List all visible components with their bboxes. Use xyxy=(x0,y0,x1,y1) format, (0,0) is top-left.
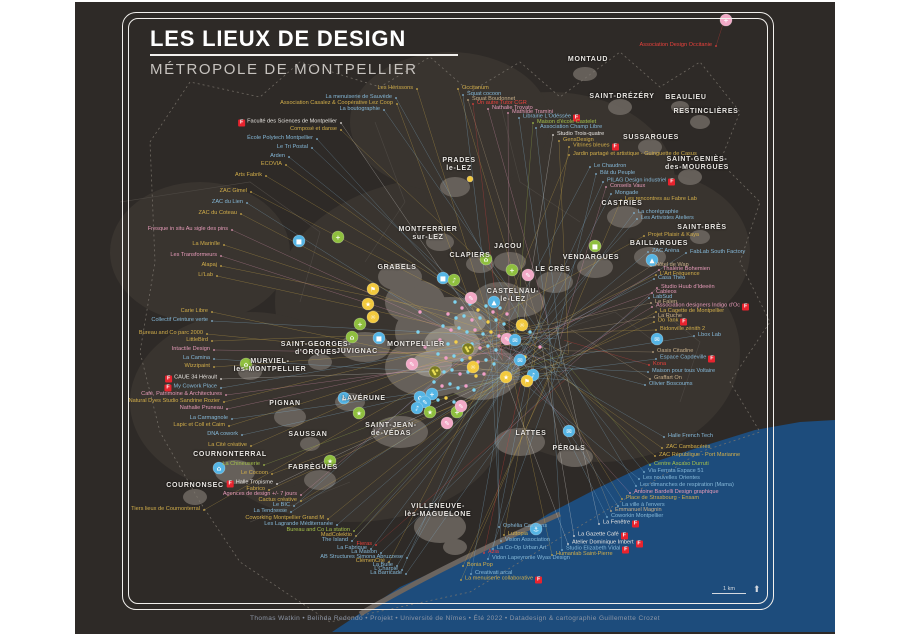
badge-icon: ⚑ xyxy=(524,377,530,385)
label-anchor-dot xyxy=(518,117,520,119)
poi-label: ZAC du Lien xyxy=(212,200,243,206)
poi-label-text: La Tendresse xyxy=(254,508,287,514)
poi-dot xyxy=(502,322,505,325)
label-anchor-dot xyxy=(416,88,418,90)
label-anchor-dot xyxy=(503,534,505,536)
label-anchor-dot xyxy=(462,94,464,96)
badge-icon: ⚑ xyxy=(370,285,376,293)
poi-badge: ♪ xyxy=(448,274,460,286)
poi-label-text: Vitrines bleues xyxy=(573,143,610,149)
label-anchor-dot xyxy=(213,366,215,368)
label-anchor-dot xyxy=(383,109,385,111)
poi-label: La Barricade xyxy=(370,571,402,577)
poi-badge: + xyxy=(354,318,366,330)
city-label: SAINT-JEAN- de-VÉDAS xyxy=(365,422,417,438)
poi-dot xyxy=(418,310,421,313)
badge-icon: ✉ xyxy=(654,335,659,343)
badge-icon: ⌂ xyxy=(217,464,222,472)
label-anchor-dot xyxy=(220,378,222,380)
label-anchor-dot xyxy=(240,213,242,215)
poi-dot xyxy=(489,330,492,333)
badge-icon: ✎ xyxy=(422,398,427,406)
poi-label-text: Le Cocoon xyxy=(241,470,268,476)
poi-label: Maison pour tous Voltaire xyxy=(652,369,715,375)
label-anchor-dot xyxy=(655,311,657,313)
city-label: PRADES le-LEZ xyxy=(442,157,475,173)
title-rule xyxy=(150,54,458,56)
label-anchor-dot xyxy=(351,540,353,542)
poi-label: ZAC Gimel xyxy=(220,189,247,195)
poi-label-text: Natural Dyes Studio Sandrine Rozier xyxy=(129,398,220,404)
f-mark-icon: F xyxy=(742,304,749,311)
poi-label-text: Tiers lieux de Cournonterral xyxy=(131,506,200,512)
poi-dot xyxy=(441,324,444,327)
label-anchor-dot xyxy=(263,464,265,466)
city-label: VENDARGUES xyxy=(563,254,619,262)
label-anchor-dot xyxy=(231,229,233,231)
label-anchor-dot xyxy=(265,175,267,177)
poi-label-text: Les rencontres au Fabre Lab xyxy=(625,196,697,202)
poi-dot xyxy=(452,400,455,403)
poi-dot xyxy=(492,362,495,365)
label-anchor-dot xyxy=(293,505,295,507)
poi-label: Association Design Occitanie xyxy=(640,43,712,49)
city-label: SAINT-BRÈS xyxy=(677,224,726,232)
poi-label-text: Café, Patrimoine & Architectures xyxy=(141,391,222,397)
poi-label: Les dimanches de respiration (Mama) xyxy=(640,483,734,489)
poi-label: Creativati arcal xyxy=(475,571,512,577)
badge-icon: ■ xyxy=(296,237,302,245)
poi-label: Les nouvelles Orientes xyxy=(643,476,700,482)
label-anchor-dot xyxy=(246,202,248,204)
label-anchor-dot xyxy=(647,371,649,373)
poi-label-text: ZAC Cambacérès xyxy=(666,444,710,450)
poi-dot xyxy=(482,372,485,375)
scale-bar-line xyxy=(712,593,746,594)
badge-icon: ★ xyxy=(356,409,362,417)
poi-badge: ■ xyxy=(373,332,385,344)
label-anchor-dot xyxy=(598,523,600,525)
poi-badge: ■ xyxy=(589,240,601,252)
label-anchor-dot xyxy=(647,251,649,253)
poi-label: ZAC du Coteau xyxy=(198,211,237,217)
poi-label-text: The Island xyxy=(322,537,348,543)
poi-dot xyxy=(538,345,541,348)
poi-label: Place de Strasbourg - Ensam xyxy=(626,496,699,502)
poi-dot xyxy=(460,358,463,361)
label-anchor-dot xyxy=(327,518,329,520)
poi-dot xyxy=(458,372,461,375)
poi-label: Humanlab Saint-Pierre xyxy=(556,552,613,558)
poi-label: La Chineuserie xyxy=(222,462,260,468)
label-anchor-dot xyxy=(653,321,655,323)
poi-dot xyxy=(450,368,453,371)
poi-label: Les Artivistes Ateliers xyxy=(641,216,694,222)
poi-dot xyxy=(442,370,445,373)
badge-icon: ★ xyxy=(503,373,509,381)
poi-badge: ♪ xyxy=(411,402,423,414)
label-anchor-dot xyxy=(487,558,489,560)
poi-label: ECOVIA xyxy=(261,162,282,168)
poi-badge xyxy=(429,366,441,378)
city-label: MONTPELLIER xyxy=(387,341,445,349)
poi-label-text: Association Design Occitanie xyxy=(640,42,712,48)
poi-label-text: ZAC du Lien xyxy=(212,199,243,205)
poi-label-text: Olivier Boscoums xyxy=(649,381,693,387)
label-anchor-dot xyxy=(223,244,225,246)
label-anchor-dot xyxy=(610,510,612,512)
label-anchor-dot xyxy=(648,297,650,299)
poi-label-text: FabLab South Factory xyxy=(690,249,745,255)
badge-icon: ✉ xyxy=(512,336,517,344)
poi-label-text: Li'Lab xyxy=(198,272,213,278)
label-anchor-dot xyxy=(231,418,233,420)
badge-icon: ■ xyxy=(440,274,446,282)
poi-label-text: Halle French Tech xyxy=(668,433,713,439)
poi-label: La Co-Op Urban Art xyxy=(497,546,546,552)
badge-icon: + xyxy=(429,390,434,398)
badge-icon: ♪ xyxy=(452,276,456,284)
label-anchor-dot xyxy=(568,146,570,148)
label-anchor-dot xyxy=(396,103,398,105)
label-anchor-dot xyxy=(462,565,464,567)
label-anchor-dot xyxy=(211,340,213,342)
poi-label-text: Le Tri Postal xyxy=(277,144,308,150)
poi-dot xyxy=(444,356,447,359)
poi-label: La Gazette CaféF xyxy=(578,533,630,540)
poi-label-text: Creativati arcal xyxy=(475,570,512,576)
poi-dot xyxy=(416,330,419,333)
poi-label: Alapaj xyxy=(201,263,217,269)
poi-badge: ✎ xyxy=(465,292,477,304)
poi-dot xyxy=(432,380,435,383)
connector-line xyxy=(716,24,723,46)
label-anchor-dot xyxy=(663,436,665,438)
poi-label-text: ZAC Gimel xyxy=(220,188,247,194)
label-anchor-dot xyxy=(290,511,292,513)
f-mark-icon: F xyxy=(668,179,675,186)
poi-label-text: Espace Capdeville xyxy=(660,355,706,361)
poi-label-text: Les dimanches de respiration (Mama) xyxy=(640,482,734,488)
poi-dot xyxy=(460,306,463,309)
label-anchor-dot xyxy=(460,579,462,581)
poi-badge: ★ xyxy=(353,407,365,419)
label-anchor-dot xyxy=(568,154,570,156)
poi-label: Le Cocoon xyxy=(241,471,268,477)
city-label: BAILLARGUES xyxy=(630,240,688,248)
poi-label: Les Hérissons xyxy=(378,86,413,92)
poi-label-text: Fresque in situ Au sigle des pins xyxy=(148,226,228,232)
label-anchor-dot xyxy=(610,193,612,195)
label-anchor-dot xyxy=(216,275,218,277)
f-mark-icon: F xyxy=(708,356,715,363)
poi-dot xyxy=(491,310,494,313)
badge-icon: + xyxy=(509,266,514,274)
label-anchor-dot xyxy=(573,535,575,537)
label-anchor-dot xyxy=(693,335,695,337)
label-anchor-dot xyxy=(621,498,623,500)
poi-label: Le Chaudron xyxy=(594,164,626,170)
poi-label-text: Casa Théo xyxy=(658,275,685,281)
poi-label: Arts Fabrik xyxy=(235,173,262,179)
label-anchor-dot xyxy=(650,302,652,304)
poi-label-text: Bonia Pop xyxy=(467,562,493,568)
poi-label: Halle French Tech xyxy=(668,434,713,440)
label-anchor-dot xyxy=(605,186,607,188)
label-anchor-dot xyxy=(472,103,474,105)
label-anchor-dot xyxy=(589,166,591,168)
poi-label: Fresque in situ Au sigle des pins xyxy=(148,227,228,233)
poi-dot xyxy=(453,300,456,303)
city-label: BEAULIEU xyxy=(665,94,706,102)
poi-label-text: La Carmagnole xyxy=(190,415,228,421)
city-label: SUSSARGUES xyxy=(623,134,679,142)
poi-badge: + xyxy=(720,14,732,26)
poi-dot xyxy=(446,342,449,345)
poi-dot xyxy=(494,318,497,321)
poi-label-text: Do Tank xyxy=(658,318,678,324)
poi-label: Do TankF xyxy=(658,319,689,326)
poi-label: FabLab South Factory xyxy=(690,250,745,256)
label-anchor-dot xyxy=(353,530,355,532)
poi-label: Jardin partagé et artistique - Guinguett… xyxy=(573,152,697,158)
poi-label: Centre Ascaso Durruti xyxy=(654,462,709,468)
poi-label: Les rencontres au Fabre Lab xyxy=(625,197,697,203)
poi-label-text: La Fenêtre xyxy=(603,520,630,526)
city-label: JACOU xyxy=(494,243,522,251)
label-anchor-dot xyxy=(223,401,225,403)
poi-dot xyxy=(472,388,475,391)
poi-label: Conseils Vaux xyxy=(610,184,645,190)
label-anchor-dot xyxy=(648,364,650,366)
poi-label-text: Faculté des Sciences de Montpellier xyxy=(247,119,337,125)
city-label: MONTAUD xyxy=(568,56,608,64)
poi-dot xyxy=(448,382,451,385)
poi-label-text: Coworkin Montpellier xyxy=(611,513,663,519)
poi-badge: ✉ xyxy=(651,333,663,345)
label-anchor-dot xyxy=(395,97,397,99)
label-anchor-dot xyxy=(271,473,273,475)
poi-label-text: Via Ferrata Espace 51 xyxy=(648,468,704,474)
poi-label: Arden xyxy=(270,154,285,160)
label-anchor-dot xyxy=(213,349,215,351)
poi-label: La Camina xyxy=(183,356,210,362)
f-mark-icon: F xyxy=(227,481,234,488)
poi-dot xyxy=(452,354,455,357)
poi-label: The Island xyxy=(322,538,348,544)
label-anchor-dot xyxy=(636,218,638,220)
poi-label-text: ZAC Aréna xyxy=(652,248,679,254)
badge-icon: ✉ xyxy=(566,427,571,435)
poi-badge: + xyxy=(332,231,344,243)
poi-dot xyxy=(457,326,460,329)
poi-label-text: Place de Strasbourg - Ensam xyxy=(626,495,699,501)
poi-badge: ✉ xyxy=(509,334,521,346)
f-mark-icon: F xyxy=(632,521,639,528)
label-anchor-dot xyxy=(649,464,651,466)
poi-label: La Tendresse xyxy=(254,509,287,515)
f-mark-icon: F xyxy=(636,541,643,548)
poi-label: Bonia Pop xyxy=(467,563,493,569)
label-anchor-dot xyxy=(606,516,608,518)
poi-dot xyxy=(481,332,484,335)
poi-label: ZAC Cambacérès xyxy=(666,445,710,451)
poi-dot xyxy=(454,316,457,319)
poi-label-text: Ophélia Cazalens xyxy=(503,523,547,529)
label-anchor-dot xyxy=(487,108,489,110)
city-label: GRABELS xyxy=(377,264,416,272)
poi-label: Projet Plaisir & Kaya xyxy=(648,233,699,239)
badge-icon: ✎ xyxy=(458,402,463,410)
badge-icon: ■ xyxy=(592,242,598,250)
poi-dot xyxy=(440,384,443,387)
poi-dot xyxy=(497,334,500,337)
poi-label-text: Vision Association xyxy=(505,537,550,543)
badge-icon: ☼ xyxy=(370,313,376,321)
poi-label-text: Arts Fabrik xyxy=(235,172,262,178)
poi-label-text: Alapaj xyxy=(201,262,217,268)
poi-label-text: DNA cowork xyxy=(207,431,238,437)
poi-label-text: Projet Plaisir & Kaya xyxy=(648,232,699,238)
poi-dot xyxy=(470,318,473,321)
badge-icon: ✉ xyxy=(517,356,522,364)
city-label: MONTFERRIER sur-LEZ xyxy=(398,226,457,242)
label-anchor-dot xyxy=(483,552,485,554)
poi-label: La FenêtreF xyxy=(603,521,641,528)
poi-dot xyxy=(446,312,449,315)
label-anchor-dot xyxy=(715,45,717,47)
label-anchor-dot xyxy=(552,134,554,136)
poi-label: Coworkin Montpellier xyxy=(611,514,663,520)
poi-label-text: La Marinîle xyxy=(192,241,220,247)
poi-label-text: Jardin partagé et artistique - Guinguett… xyxy=(573,151,697,157)
label-anchor-dot xyxy=(203,509,205,511)
city-label: PIGNAN xyxy=(269,400,300,408)
label-anchor-dot xyxy=(211,320,213,322)
label-anchor-dot xyxy=(211,311,213,313)
poi-label: Vitrines bleuesF xyxy=(573,144,621,151)
poi-dot xyxy=(484,304,487,307)
poi-badge: ★ xyxy=(500,371,512,383)
poi-badge: ☼ xyxy=(467,361,479,373)
poi-dot xyxy=(528,330,531,333)
label-anchor-dot xyxy=(226,408,228,410)
label-anchor-dot xyxy=(655,329,657,331)
poi-label: Casa Théo xyxy=(658,276,685,282)
city-label: SAINT-GENIÈS- des-MOURGUES xyxy=(665,156,729,172)
label-anchor-dot xyxy=(685,252,687,254)
poi-label-text: Humanlab Saint-Pierre xyxy=(556,551,613,557)
f-mark-icon: F xyxy=(680,319,687,326)
poi-dot xyxy=(464,384,467,387)
label-anchor-dot xyxy=(629,492,631,494)
city-label: SAUSSAN xyxy=(288,431,327,439)
poi-label-text: Bât du Peuple xyxy=(600,170,635,176)
screenshot-canvas: +■⌂+✎■♪■+⚑★☼+⌂✎▲☼✎✉✎☼✉★♪⚑+⌂✎♪★+✎✎⌂■⌂★★⌂▲… xyxy=(0,0,900,636)
city-label: SAINT-DRÉZÉRY xyxy=(589,93,654,101)
city-label: CLAPIERS xyxy=(450,252,491,260)
poi-badge: ✉ xyxy=(563,425,575,437)
label-anchor-dot xyxy=(220,265,222,267)
label-anchor-dot xyxy=(633,212,635,214)
city-label: VILLENEUVE- lès-MAGUELONE xyxy=(405,503,472,519)
poi-dot xyxy=(484,358,487,361)
city-label: FABRÈGUES xyxy=(288,464,338,472)
label-anchor-dot xyxy=(213,358,215,360)
label-anchor-dot xyxy=(206,333,208,335)
badge-icon: ✎ xyxy=(468,294,473,302)
f-mark-icon: F xyxy=(238,120,245,127)
scale-label: 1 km xyxy=(723,586,735,592)
poi-badge: + xyxy=(506,264,518,276)
poi-label: Collectif Ceinture verte xyxy=(151,318,208,324)
label-anchor-dot xyxy=(220,255,222,257)
badge-icon: ♪ xyxy=(415,404,419,412)
poi-label-text: La Co-Op Urban Art xyxy=(497,545,546,551)
poi-label: Luttopia xyxy=(508,532,528,538)
poster-title: LES LIEUX DE DESIGN xyxy=(150,26,406,52)
f-mark-icon: F xyxy=(612,144,619,151)
poi-label-text: Les Hérissons xyxy=(378,85,413,91)
poi-label-text: Intactile Design xyxy=(172,346,210,352)
poi-badge: ✎ xyxy=(522,269,534,281)
poi-label: Intactile Design xyxy=(172,347,210,353)
poi-label: Bureau and Co parc 2000 xyxy=(139,331,203,337)
poi-label: Nathalie Pruneau xyxy=(180,406,223,412)
poi-dot xyxy=(462,314,465,317)
poi-badge xyxy=(467,176,473,182)
label-anchor-dot xyxy=(225,394,227,396)
label-anchor-dot xyxy=(285,164,287,166)
poi-dot xyxy=(436,398,439,401)
label-anchor-dot xyxy=(652,351,654,353)
poi-label: La Carmagnole xyxy=(190,416,228,422)
label-anchor-dot xyxy=(643,471,645,473)
poi-label-text: La Chineuserie xyxy=(222,461,260,467)
badge-icon: ☼ xyxy=(519,321,525,329)
poi-label: DNA cowork xyxy=(207,432,238,438)
label-anchor-dot xyxy=(467,99,469,101)
label-anchor-dot xyxy=(300,494,302,496)
badge-icon: ★ xyxy=(427,408,433,416)
badge-icon: ■ xyxy=(376,334,382,342)
poi-label-text: La Barricade xyxy=(370,570,402,576)
label-anchor-dot xyxy=(644,384,646,386)
label-anchor-dot xyxy=(340,129,342,131)
poi-label: Café, Patrimoine & Architectures xyxy=(141,392,222,398)
label-anchor-dot xyxy=(498,526,500,528)
poi-label: La menuiserie collaborativeF xyxy=(465,577,544,584)
city-label: SAINT-GEORGES- d'ORQUES xyxy=(281,341,351,357)
label-anchor-dot xyxy=(276,483,278,485)
label-anchor-dot xyxy=(228,425,230,427)
poi-label-text: Halle Tropisme xyxy=(236,480,273,486)
poi-label: LittleBird xyxy=(186,338,208,344)
city-label: CASTELNAU- le-LEZ xyxy=(487,288,540,304)
label-anchor-dot xyxy=(532,122,534,124)
label-anchor-dot xyxy=(638,478,640,480)
city-label: LE CRÈS xyxy=(535,266,570,274)
label-anchor-dot xyxy=(250,445,252,447)
poi-badge: ☼ xyxy=(367,311,379,323)
badge-icon: ✎ xyxy=(525,271,530,279)
poi-label-text: Les Transformeurs xyxy=(170,252,217,258)
poi-label: Wizzipaint xyxy=(185,364,211,370)
poi-label-text: La boutographie xyxy=(340,106,380,112)
label-anchor-dot xyxy=(635,485,637,487)
label-anchor-dot xyxy=(375,544,377,546)
label-anchor-dot xyxy=(500,540,502,542)
